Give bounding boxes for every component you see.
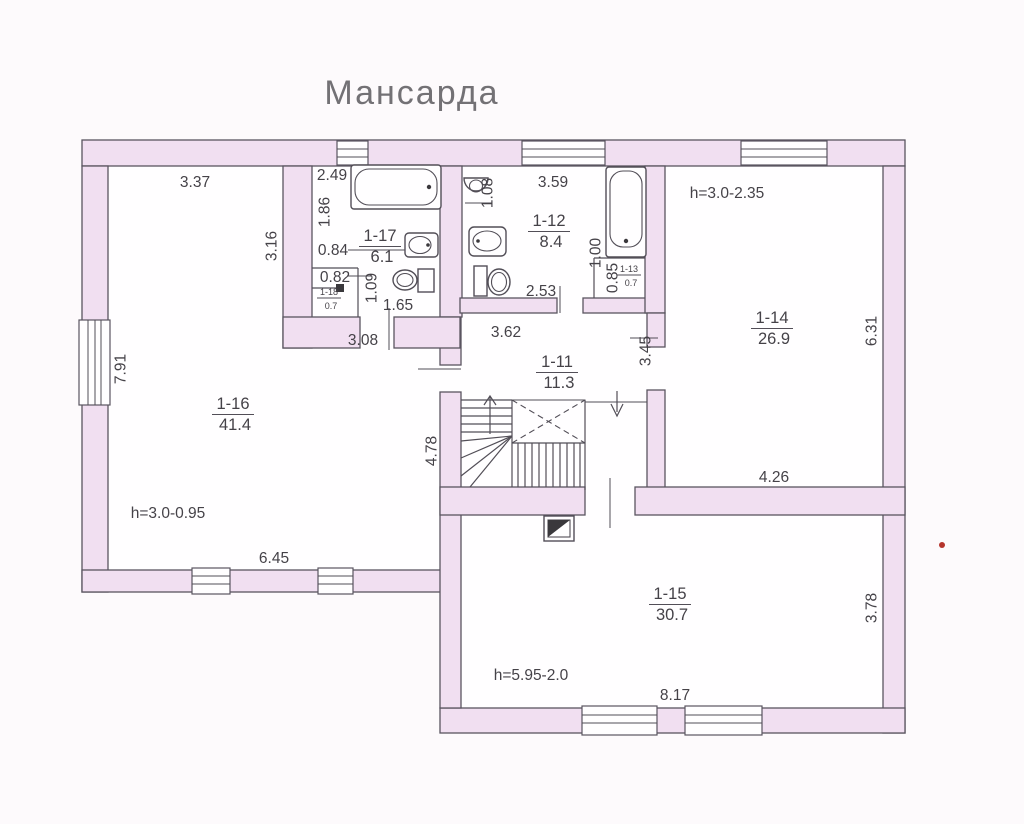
window-icon xyxy=(582,706,657,735)
dimension-label: 3.59 xyxy=(538,174,568,191)
dimension-label: h=3.0-2.35 xyxy=(690,185,765,202)
room-id-label: 1-17 xyxy=(363,227,396,245)
dimension-label: 0.82 xyxy=(320,269,350,286)
chimney-icon xyxy=(544,516,574,541)
dimension-label: 3.78 xyxy=(864,593,881,623)
window-icon xyxy=(685,706,762,735)
dimension-label: 0.85 xyxy=(605,263,622,293)
window-icon xyxy=(192,568,230,594)
dimension-label: 3.16 xyxy=(264,231,281,261)
dimension-label: 7.91 xyxy=(113,354,130,384)
dimension-label: 1.08 xyxy=(480,178,497,208)
room-area-label: 41.4 xyxy=(219,416,251,434)
room-area-label: 26.9 xyxy=(758,330,790,348)
room-area-label: 6.1 xyxy=(371,248,394,266)
room-id-label: 1-15 xyxy=(653,585,686,603)
dimension-label: 2.49 xyxy=(317,167,347,184)
dimension-label: 4.26 xyxy=(759,469,789,486)
room-area-label: 0.7 xyxy=(625,278,638,288)
room-id-label: 1-12 xyxy=(532,212,565,230)
dimension-label: 1.86 xyxy=(317,197,334,227)
floor-plan-drawing: Мансарда 3.372.493.59h=3.0-2.351.081.863… xyxy=(0,0,1024,824)
dimension-label: 3.45 xyxy=(638,336,655,366)
page-title: Мансарда xyxy=(324,74,499,112)
window-icon xyxy=(741,141,827,165)
room-id-label: 1-11 xyxy=(541,353,573,371)
dimension-label: 1.09 xyxy=(364,273,381,303)
dimension-label: 1.65 xyxy=(383,297,413,314)
dimension-label: 3.37 xyxy=(180,174,210,191)
dimension-label: h=3.0-0.95 xyxy=(131,505,206,522)
window-icon xyxy=(337,141,368,165)
window-icon xyxy=(79,320,110,405)
window-icon xyxy=(318,568,353,594)
dimension-label: 0.84 xyxy=(318,242,349,259)
sitz-bath-icon xyxy=(469,227,506,256)
room-area-label: 8.4 xyxy=(540,233,563,251)
room-id-label: 1-16 xyxy=(216,395,249,413)
dimension-label: 3.08 xyxy=(348,332,378,349)
room-id-label: 1-13 xyxy=(620,264,638,274)
bathtub-icon xyxy=(606,167,646,257)
bathtub-icon xyxy=(351,165,441,209)
room-area-label: 0.7 xyxy=(325,301,338,311)
dimension-label: 4.78 xyxy=(424,436,441,466)
dimension-label: 8.17 xyxy=(660,687,690,704)
dimension-label: 6.31 xyxy=(864,316,881,346)
room-id-label: 1-18 xyxy=(320,287,338,297)
scanned-floor-plan-page: Мансарда 3.372.493.59h=3.0-2.351.081.863… xyxy=(0,0,1024,824)
dimension-label: 1.00 xyxy=(588,238,605,269)
room-area-label: 30.7 xyxy=(656,606,688,624)
room-area-label: 11.3 xyxy=(544,374,575,392)
red-scan-mark xyxy=(939,542,945,548)
sink-icon xyxy=(405,233,438,257)
dimension-label: 3.62 xyxy=(491,324,521,341)
dimension-label: h=5.95-2.0 xyxy=(494,667,569,684)
window-icon xyxy=(522,141,605,165)
dimension-label: 6.45 xyxy=(259,550,289,567)
dimension-label: 2.53 xyxy=(526,283,556,300)
room-id-label: 1-14 xyxy=(755,309,788,327)
